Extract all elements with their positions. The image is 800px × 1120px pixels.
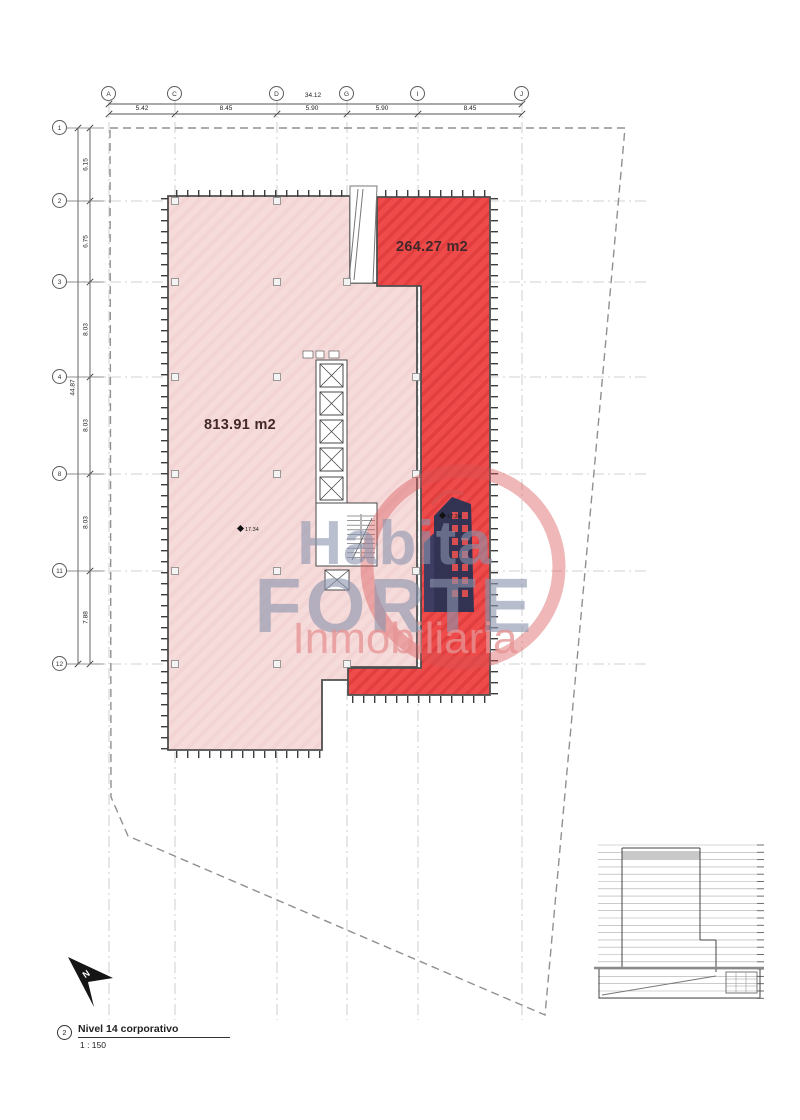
dim-left-seg-2: 6.75 <box>83 224 90 260</box>
dim-left-total: 44.87 <box>70 370 77 406</box>
grid-bubble-col-c: C <box>167 86 182 101</box>
grid-bubble-col-a: A <box>101 86 116 101</box>
dim-left-seg-4: 8.03 <box>83 408 90 444</box>
dim-top-seg-5: 8.45 <box>453 105 487 112</box>
grid-bubble-row-1: 1 <box>52 120 67 135</box>
floor-plan-sheet: A C D G I J 1 2 3 4 8 11 12 34.12 5.42 8… <box>0 0 800 1120</box>
dim-top-seg-1: 5.42 <box>125 105 159 112</box>
grid-bubble-row-2: 2 <box>52 193 67 208</box>
grid-bubble-row-3: 3 <box>52 274 67 289</box>
dim-top-seg-4: 5.90 <box>365 105 399 112</box>
elevation-key <box>594 845 764 998</box>
drawing-scale: 1 : 150 <box>80 1040 106 1050</box>
dim-left-seg-3: 8.03 <box>83 312 90 348</box>
grid-bubble-col-g: G <box>339 86 354 101</box>
grid-bubble-row-12: 12 <box>52 656 67 671</box>
dim-top-seg-2: 8.45 <box>209 105 243 112</box>
grid-bubble-row-4: 4 <box>52 369 67 384</box>
grid-bubble-col-j: J <box>514 86 529 101</box>
dim-top-total: 34.12 <box>296 92 330 99</box>
grid-bubble-row-11: 11 <box>52 563 67 578</box>
area-label-floorplate: 813.91 m2 <box>175 417 305 433</box>
dim-left-seg-5: 8.03 <box>83 505 90 541</box>
area-label-highlight: 264.27 m2 <box>367 239 497 255</box>
grid-bubble-col-d: D <box>269 86 284 101</box>
elevation-level-highlight <box>622 851 700 860</box>
grid-bubble-col-i: I <box>410 86 425 101</box>
dim-top-seg-3: 5.90 <box>295 105 329 112</box>
grid-bubble-row-8: 8 <box>52 466 67 481</box>
dim-left-seg-1: 6.15 <box>83 147 90 183</box>
drawing-title: Nivel 14 corporativo <box>78 1023 230 1038</box>
vestibule <box>349 186 377 283</box>
dim-left-seg-6: 7.88 <box>83 600 90 636</box>
north-arrow-icon <box>68 957 113 1007</box>
title-bubble: 2 <box>57 1025 72 1040</box>
watermark-line-3: Inmobiliaria <box>235 614 575 664</box>
